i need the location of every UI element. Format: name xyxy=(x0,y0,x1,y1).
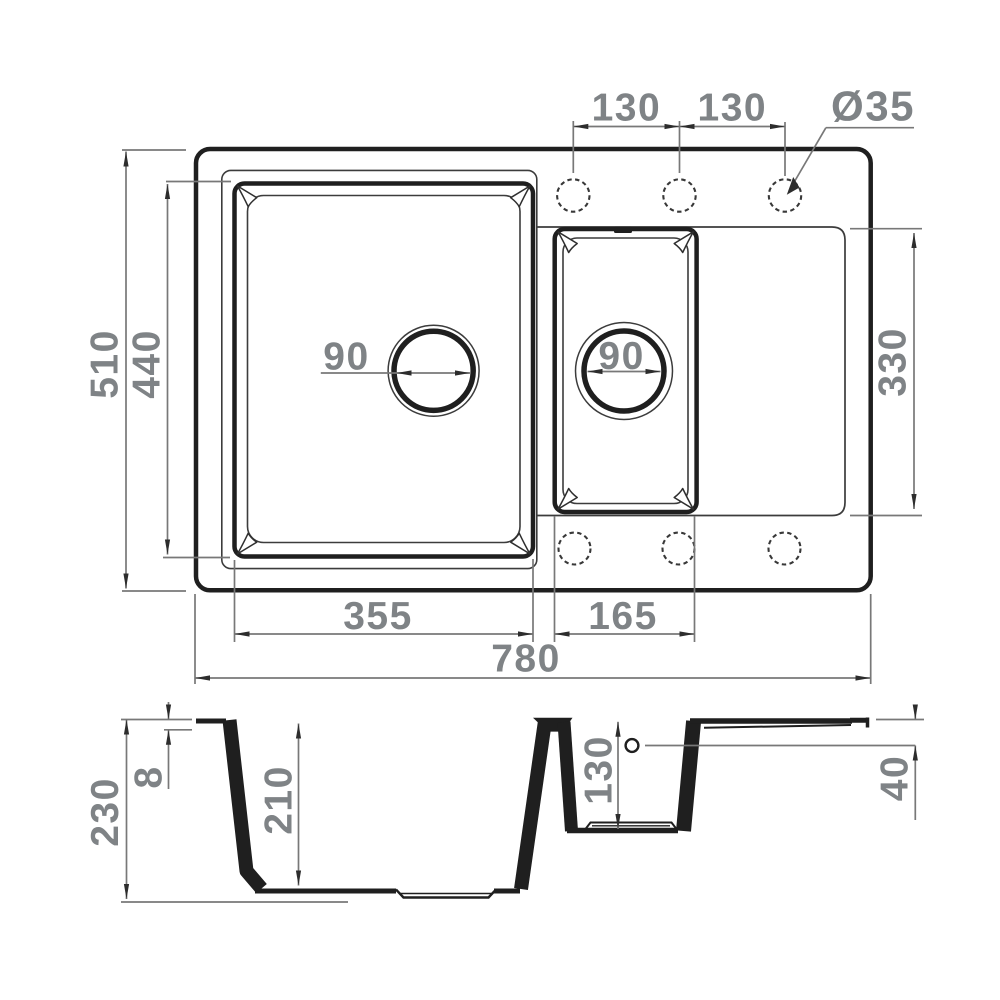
svg-text:130: 130 xyxy=(698,87,768,130)
svg-text:90: 90 xyxy=(323,336,369,379)
svg-text:40: 40 xyxy=(874,755,917,801)
svg-text:210: 210 xyxy=(258,765,301,835)
svg-text:130: 130 xyxy=(578,735,621,805)
svg-text:130: 130 xyxy=(592,87,662,130)
svg-text:8: 8 xyxy=(128,765,171,788)
svg-text:Ø35: Ø35 xyxy=(831,83,915,130)
svg-text:165: 165 xyxy=(588,595,658,638)
svg-text:230: 230 xyxy=(84,777,127,847)
svg-text:510: 510 xyxy=(84,329,127,399)
svg-text:780: 780 xyxy=(491,638,561,681)
svg-text:330: 330 xyxy=(872,327,915,397)
svg-text:355: 355 xyxy=(343,595,413,638)
svg-text:440: 440 xyxy=(126,329,169,399)
